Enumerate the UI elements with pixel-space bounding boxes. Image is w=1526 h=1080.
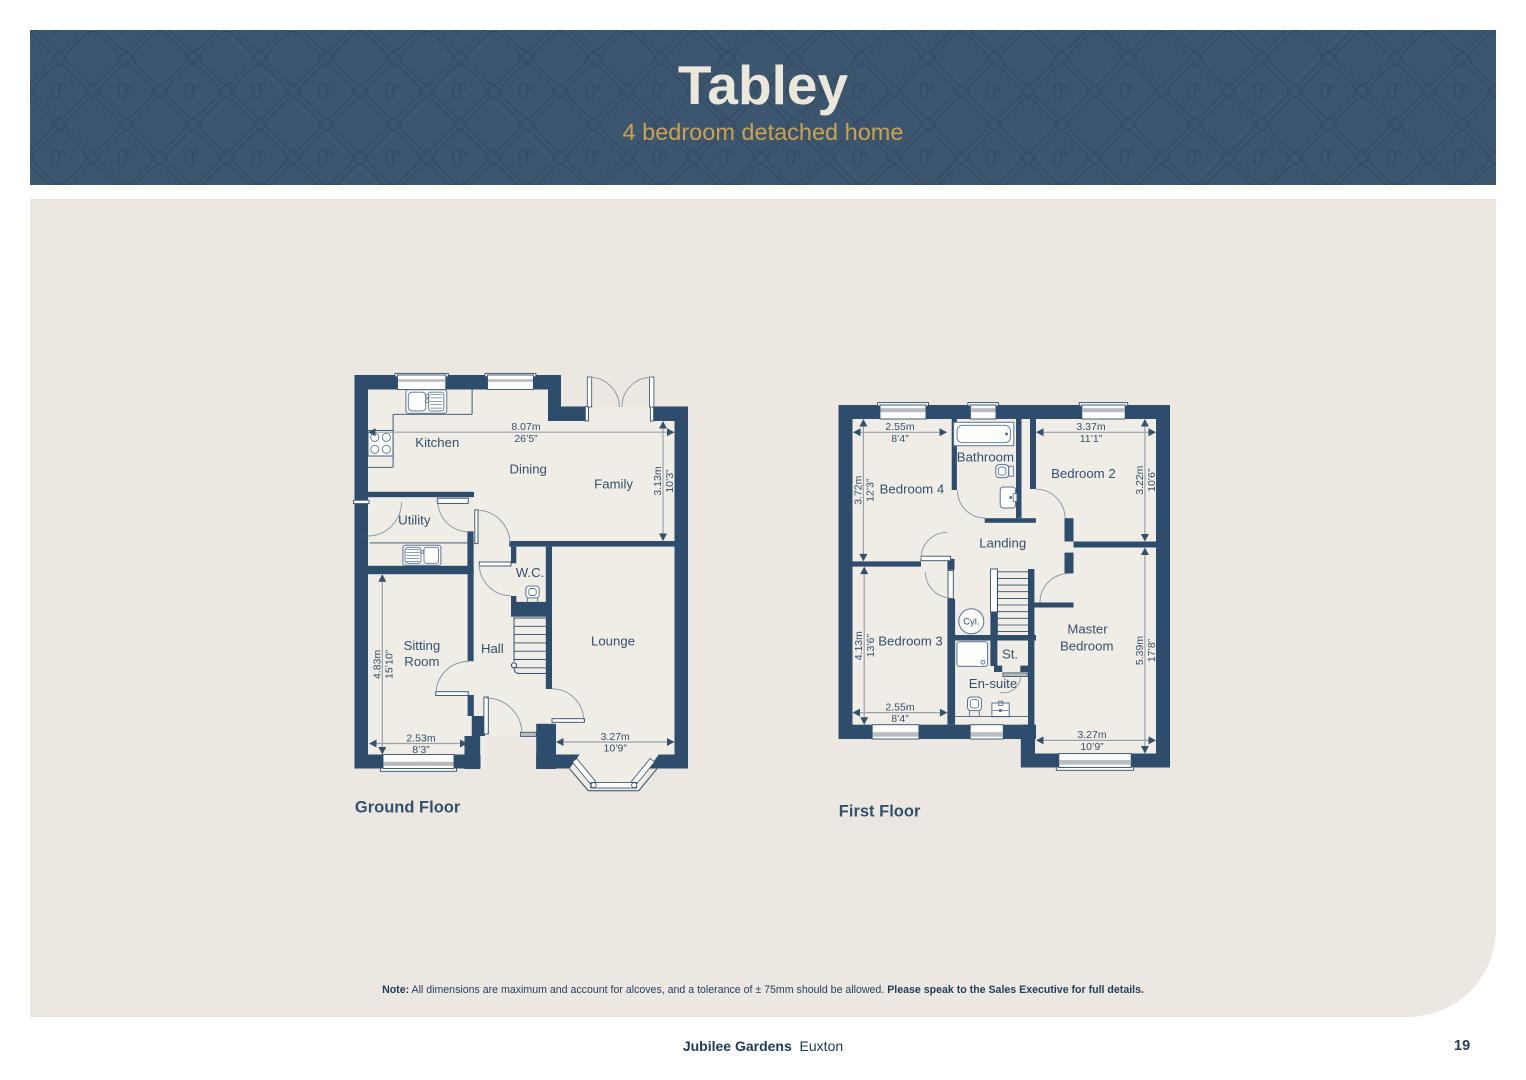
svg-text:12’3”: 12’3”	[864, 478, 876, 502]
svg-text:En-suite: En-suite	[969, 676, 1017, 691]
svg-text:Kitchen: Kitchen	[415, 435, 459, 450]
svg-text:10’9”: 10’9”	[604, 743, 628, 755]
svg-text:Bedroom 4: Bedroom 4	[880, 482, 945, 497]
svg-text:St.: St.	[1002, 647, 1018, 662]
svg-text:Bedroom 3: Bedroom 3	[878, 634, 943, 649]
svg-text:Landing: Landing	[979, 536, 1026, 551]
svg-text:8’4”: 8’4”	[891, 713, 909, 725]
svg-text:11’1”: 11’1”	[1080, 433, 1103, 445]
svg-text:Sitting: Sitting	[404, 638, 441, 653]
svg-text:2.55m: 2.55m	[885, 421, 914, 433]
svg-text:Lounge: Lounge	[591, 634, 635, 649]
svg-text:2.55m: 2.55m	[885, 701, 914, 713]
svg-text:Master: Master	[1067, 622, 1108, 637]
svg-text:8.07m: 8.07m	[511, 421, 540, 433]
svg-text:8’4”: 8’4”	[891, 433, 909, 445]
svg-text:10’9”: 10’9”	[1080, 741, 1104, 753]
svg-text:3.72m: 3.72m	[852, 475, 864, 504]
svg-text:3.13m: 3.13m	[652, 466, 664, 495]
svg-text:5.39m: 5.39m	[1134, 636, 1146, 665]
svg-text:26’5”: 26’5”	[514, 433, 538, 445]
svg-text:Bathroom: Bathroom	[957, 449, 1014, 464]
svg-text:Cyl.: Cyl.	[963, 617, 979, 628]
svg-text:Bedroom 2: Bedroom 2	[1051, 466, 1116, 481]
svg-text:8’3”: 8’3”	[412, 744, 430, 756]
svg-text:First Floor: First Floor	[839, 803, 921, 821]
svg-text:3.27m: 3.27m	[601, 731, 630, 743]
svg-text:Family: Family	[594, 476, 633, 491]
svg-text:Dining: Dining	[510, 462, 547, 477]
svg-text:10’6”: 10’6”	[1146, 468, 1158, 492]
svg-text:4.83m: 4.83m	[371, 650, 383, 679]
svg-text:3.37m: 3.37m	[1076, 421, 1105, 433]
svg-text:4.13m: 4.13m	[853, 631, 865, 660]
svg-text:10’3”: 10’3”	[664, 469, 676, 493]
svg-text:2.53m: 2.53m	[406, 732, 435, 744]
svg-text:Bedroom: Bedroom	[1060, 639, 1114, 654]
svg-text:3.22m: 3.22m	[1134, 465, 1146, 494]
svg-text:15’10”: 15’10”	[383, 649, 395, 679]
svg-text:3.27m: 3.27m	[1077, 729, 1106, 741]
svg-text:Ground Floor: Ground Floor	[355, 799, 461, 817]
svg-text:Room: Room	[404, 654, 439, 669]
svg-text:13’6”: 13’6”	[865, 634, 877, 658]
svg-text:Hall: Hall	[481, 641, 504, 656]
svg-text:Utility: Utility	[398, 512, 431, 527]
svg-text:17’8”: 17’8”	[1146, 638, 1158, 662]
svg-text:W.C.: W.C.	[516, 565, 545, 580]
